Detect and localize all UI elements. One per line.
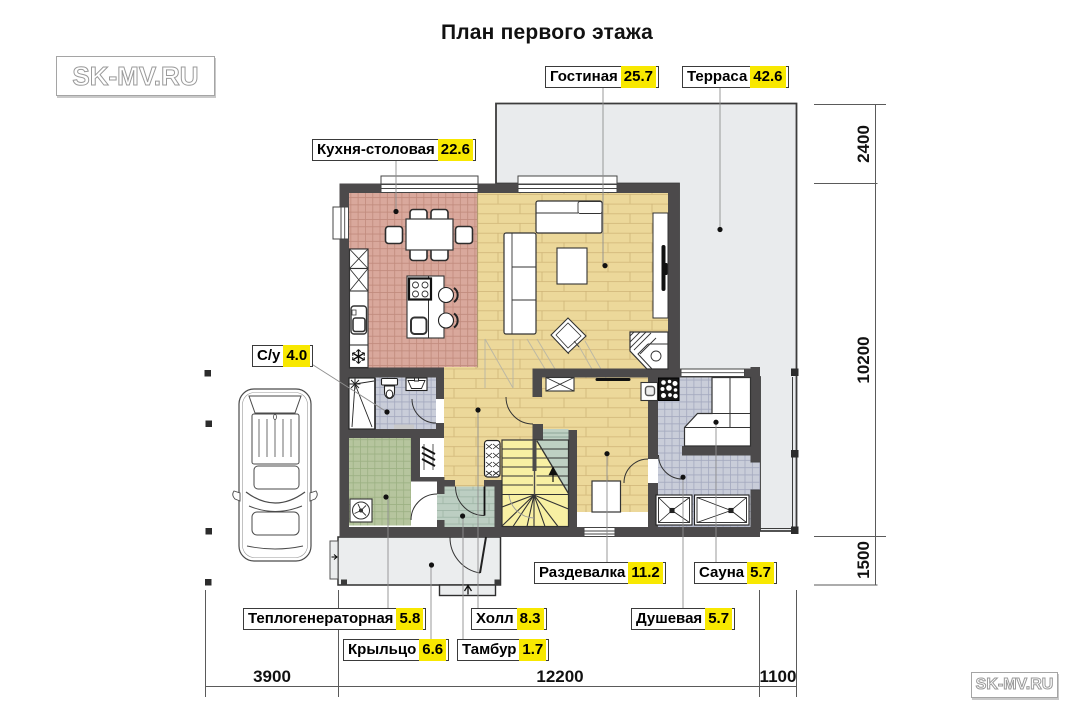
svg-text:1500: 1500 bbox=[854, 541, 873, 579]
svg-text:2400: 2400 bbox=[854, 125, 873, 163]
svg-text:12200: 12200 bbox=[536, 667, 583, 686]
svg-text:3900: 3900 bbox=[253, 667, 291, 686]
svg-text:1100: 1100 bbox=[760, 667, 797, 686]
svg-text:10200: 10200 bbox=[854, 336, 873, 383]
